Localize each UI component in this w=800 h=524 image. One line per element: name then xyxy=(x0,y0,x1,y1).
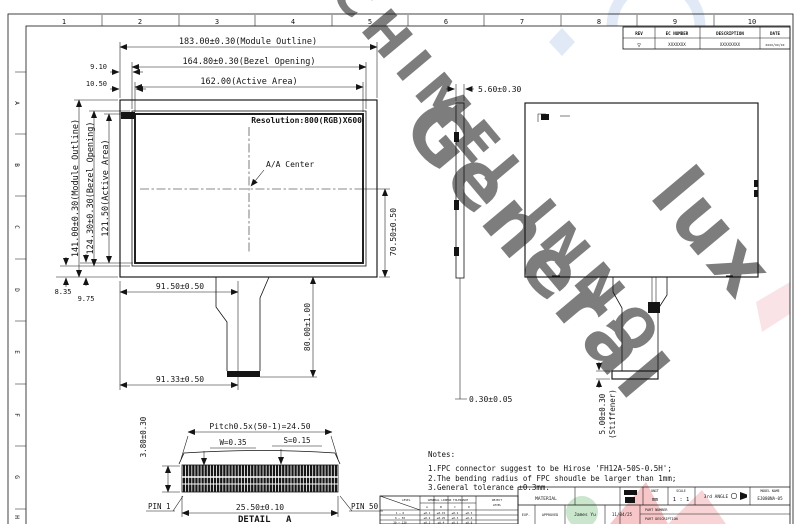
grid-col-6: 6 xyxy=(444,18,448,26)
symbol-icon xyxy=(625,497,635,503)
drawing-svg: CHIMEI INNO General lux 1 2 3 4 5 6 7 8 … xyxy=(0,0,800,524)
drawing-sheet: CHIMEI INNO General lux 1 2 3 4 5 6 7 8 … xyxy=(0,0,800,524)
svg-text:6 ~ 30: 6 ~ 30 xyxy=(395,516,405,520)
dim-module-height: 141.00±0.30(Module Outline) xyxy=(71,119,81,257)
dim-connector-height: 3.80±0.30 xyxy=(139,416,148,457)
watermark-green-dot xyxy=(566,496,598,524)
dim-stiffener: 5.00±0.30 xyxy=(598,393,607,434)
detail-title: DETAIL xyxy=(238,515,271,524)
dim-offset-bottom-active: 9.75 xyxy=(78,295,95,303)
grid-col-3: 3 xyxy=(215,18,219,26)
fpc-tail-right xyxy=(260,277,269,371)
tolerance-reject-2: LEVEL xyxy=(493,503,502,507)
grid-col-1: 1 xyxy=(62,18,66,26)
notes: Notes: 1.FPC connector suggest to be Hir… xyxy=(428,450,676,492)
detail-title-letter: A xyxy=(286,515,292,524)
rev-header: REV xyxy=(635,31,643,36)
svg-text:±0.2: ±0.2 xyxy=(424,516,431,520)
ec-number: XXXXXXX xyxy=(668,42,686,47)
module-outline xyxy=(120,100,377,277)
part-number-label: PART NUMBER xyxy=(645,508,668,512)
grid-row-e: E xyxy=(13,350,20,354)
watermark-text-mid: General xyxy=(386,82,687,417)
unit-label: UNIT xyxy=(651,489,659,493)
grid-row-h: H xyxy=(13,515,20,519)
grid-col-9: 9 xyxy=(673,18,677,26)
part-description-label: PART DESCRIPTION xyxy=(645,517,678,521)
note-line-1: 1.FPC connector suggest to be Hirose 'FH… xyxy=(428,464,672,473)
svg-text:B: B xyxy=(440,505,442,509)
dim-fpc-thickness: 0.30±0.05 xyxy=(469,395,513,404)
pin1-label: PIN 1 xyxy=(148,502,171,511)
grid-col-2: 2 xyxy=(138,18,142,26)
watermark-arc xyxy=(612,0,700,26)
dim-fpc-center-x: 91.50±0.50 xyxy=(156,282,204,291)
front-view-dimensions: 183.00±0.30(Module Outline) 164.80±0.30(… xyxy=(55,37,398,390)
grid-row-d: D xyxy=(13,288,20,292)
grid-col-8: 8 xyxy=(597,18,601,26)
dim-active-height: 121.50(Active Area) xyxy=(101,139,111,236)
dim-pitch: Pitch0.5x(50-1)=24.50 xyxy=(209,422,310,431)
dim-connector-width: 25.50±0.10 xyxy=(236,503,284,512)
dim-fpc-end-x: 91.33±0.50 xyxy=(156,375,204,384)
dim-pin-space: S=0.15 xyxy=(283,436,310,445)
third-angle-projection-icon xyxy=(731,492,747,500)
connector-lid xyxy=(179,451,340,465)
dim-offset-left-active: 10.50 xyxy=(86,80,107,88)
scale-value: 1 : 1 xyxy=(673,497,690,503)
model-name-label: MODEL NAME xyxy=(760,489,779,493)
grid-col-7: 7 xyxy=(520,18,524,26)
grid-col-5: 5 xyxy=(368,18,372,26)
watermark: CHIMEI INNO General lux xyxy=(318,0,793,524)
front-view: Resolution:800(RGB)X600 A/A Center xyxy=(120,100,377,377)
label-mark xyxy=(121,112,135,119)
description-header: DESCRIPTION xyxy=(716,31,744,36)
svg-text:±0.4: ±0.4 xyxy=(438,521,445,524)
dim-offset-bottom-bezel: 8.35 xyxy=(55,288,72,296)
dim-pin-width: W=0.35 xyxy=(219,438,246,447)
watermark-diamond xyxy=(549,28,575,56)
svg-text:1 ~ 6: 1 ~ 6 xyxy=(396,511,405,515)
svg-text:±0.15: ±0.15 xyxy=(437,511,446,515)
model-name-value: EJ080NA-05 xyxy=(757,496,783,501)
tolerance-level-label: LEVEL xyxy=(402,498,411,502)
grid-row-g: G xyxy=(13,475,20,479)
grid-row-f: F xyxy=(13,413,20,417)
date-header: DATE xyxy=(770,31,781,36)
rev-mark-icon xyxy=(624,490,637,495)
dim-bezel-height: 124.30±0.30(Bezel Opening) xyxy=(86,121,96,254)
revision-table: REV EC NUMBER DESCRIPTION DATE ▽ XXXXXXX… xyxy=(623,27,790,49)
grid-row-c: C xyxy=(13,225,20,229)
svg-text:±0.5: ±0.5 xyxy=(452,521,459,524)
grid-row-b: B xyxy=(13,163,20,167)
resolution-text: Resolution:800(RGB)X600 xyxy=(251,115,362,125)
fpc-stiffener-front xyxy=(227,371,260,377)
dim-active-width: 162.00(Active Area) xyxy=(200,77,297,87)
approved-label: APPROVED xyxy=(542,513,558,517)
svg-text:±0.3: ±0.3 xyxy=(452,516,459,520)
dim-module-width: 183.00±0.30(Module Outline) xyxy=(179,37,317,47)
exp-label: EXP. xyxy=(522,513,530,517)
dim-fpc-length: 80.00±1.00 xyxy=(303,303,312,351)
pin50-label: PIN 50 xyxy=(351,502,379,511)
material-label: MATERIAL xyxy=(535,496,557,502)
scale-label: SCALE xyxy=(676,489,686,493)
detail-a: Pitch0.5x(50-1)=24.50 W=0.35 S=0.15 3.80… xyxy=(139,416,383,524)
watermark-text-right: lux xyxy=(634,150,793,315)
pin-band xyxy=(182,465,338,492)
tolerance-reject-1: REJECT xyxy=(492,498,502,502)
svg-text:±0.4: ±0.4 xyxy=(466,516,473,520)
svg-text:D: D xyxy=(468,505,470,509)
svg-text:±0.3: ±0.3 xyxy=(424,521,431,524)
aa-center-label: A/A Center xyxy=(266,160,314,169)
fpc-connector xyxy=(648,302,660,313)
dim-thickness: 5.60±0.30 xyxy=(478,85,522,94)
note-line-3: 3.General tolerance ±0.3mm. xyxy=(428,483,550,492)
aa-center-leader xyxy=(251,170,264,186)
dim-center-to-bottom: 70.50±0.50 xyxy=(389,208,398,256)
notes-title: Notes: xyxy=(428,450,455,459)
grid-row-a: A xyxy=(13,101,20,105)
rev-date: xxxx/xx/xx xyxy=(765,43,784,47)
approved-date: 11/04/25 xyxy=(612,512,633,517)
dim-stiffener-note: (Stiffener) xyxy=(608,389,617,439)
unit-value: mm xyxy=(652,497,658,503)
tolerance-table: LEVEL GENERAL LINEAR TOLERANCE REJECT LE… xyxy=(380,496,518,524)
dim-offset-left-bezel: 9.10 xyxy=(90,63,107,71)
description: XXXXXXXX xyxy=(720,42,741,47)
angle-label: 3rd ANGLE xyxy=(704,494,729,500)
svg-text:±0.3: ±0.3 xyxy=(466,511,473,515)
svg-text:30 ~ 120: 30 ~ 120 xyxy=(393,521,407,524)
grid-col-4: 4 xyxy=(291,18,295,26)
svg-text:±0.8: ±0.8 xyxy=(466,521,473,524)
dim-bezel-width: 164.80±0.30(Bezel Opening) xyxy=(182,57,315,67)
ec-number-header: EC NUMBER xyxy=(666,31,689,36)
grid-col-10: 10 xyxy=(748,18,756,26)
rev-symbol: ▽ xyxy=(637,42,641,49)
svg-text:±0.2: ±0.2 xyxy=(452,511,459,515)
svg-text:±0.1: ±0.1 xyxy=(424,511,431,515)
svg-text:A: A xyxy=(426,505,428,509)
watermark-pink-shape xyxy=(756,282,790,332)
svg-text:±0.25: ±0.25 xyxy=(437,516,446,520)
note-line-2: 2.The bending radius of FPC shoudle be l… xyxy=(428,474,676,483)
svg-text:C: C xyxy=(454,505,456,509)
tolerance-header: GENERAL LINEAR TOLERANCE xyxy=(428,498,469,502)
fpc-tail-left xyxy=(216,277,227,371)
approved-name: James Yu xyxy=(574,512,596,518)
